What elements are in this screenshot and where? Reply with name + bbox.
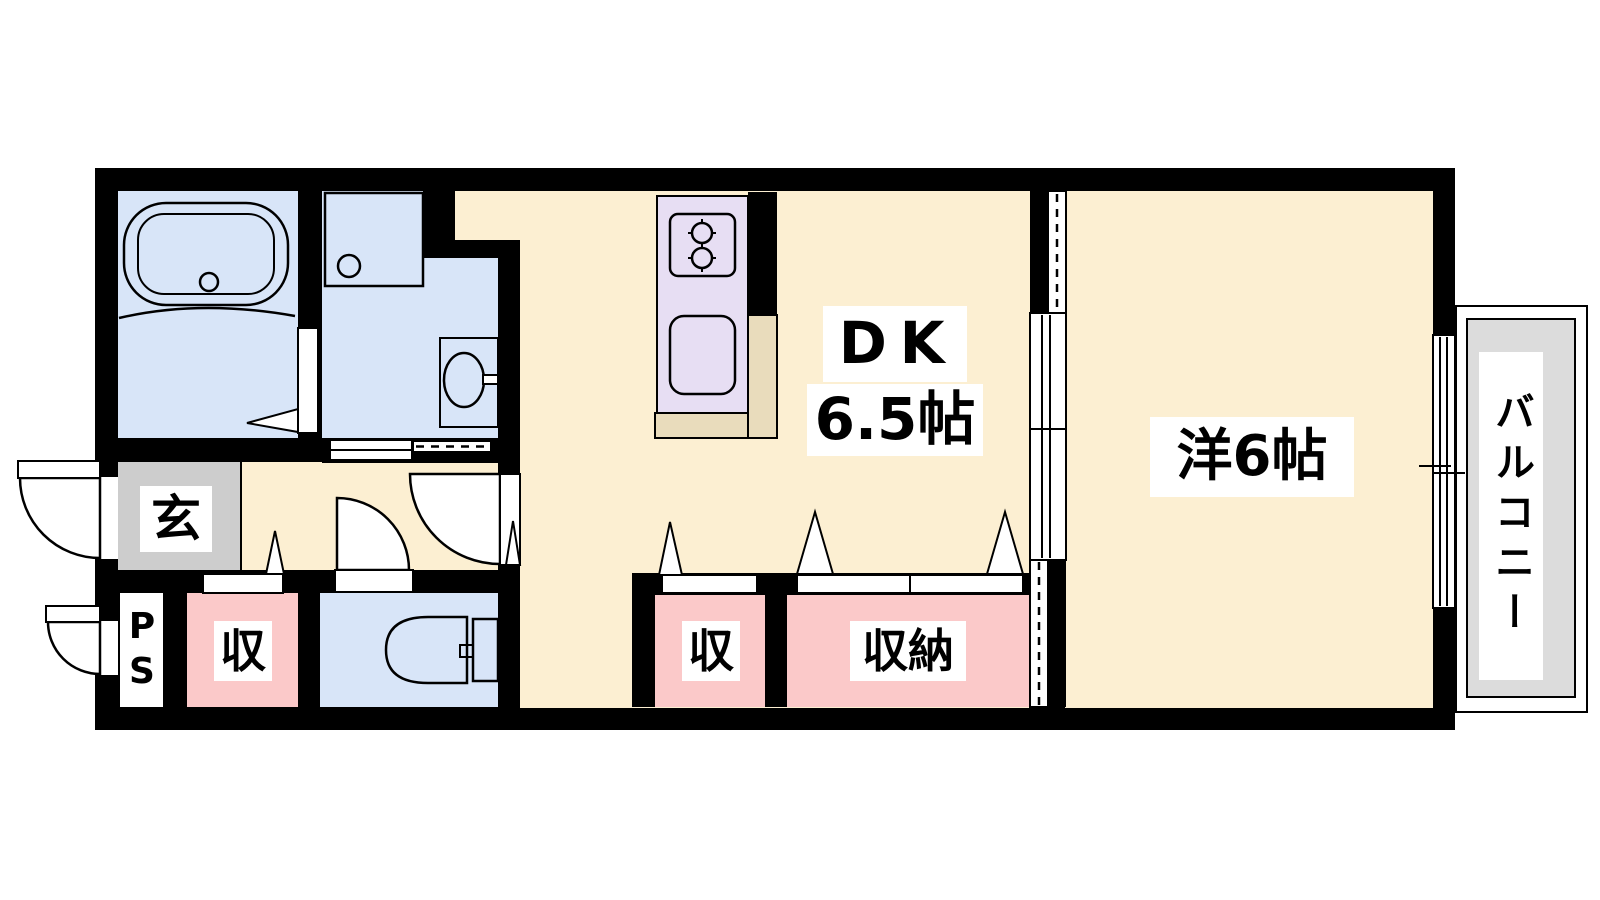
wall-storage2-north (655, 573, 765, 595)
room-bathroom (118, 191, 298, 438)
wall-washroom-south (322, 438, 520, 463)
storage-3-label: 収納 (850, 621, 966, 681)
hallway (242, 462, 520, 570)
dk-floor-notch (455, 191, 520, 240)
dk-label-name: DK (823, 306, 968, 382)
balcony-label: バルコニー (1479, 352, 1543, 680)
wall-step-vertical (423, 191, 455, 258)
wall-washroom-east-upper (498, 258, 520, 474)
dk-label-size: 6.5帖 (807, 384, 984, 456)
western-room-label: 洋6帖 (1150, 417, 1354, 497)
pipe-space-label: PS (121, 596, 163, 702)
wall-storage2-west (632, 573, 655, 707)
dining-kitchen-label: DK 6.5帖 (780, 296, 1010, 466)
floorplan-canvas: 玄 PS 収 収 収納 DK 6.5帖 洋6帖 バルコニー (0, 0, 1600, 900)
wall-storage3-north (787, 573, 1030, 595)
genkan-label: 玄 (140, 486, 212, 552)
wall-hall-south (118, 570, 520, 593)
wall-step-horizontal (455, 240, 520, 258)
wall-between-closets (765, 573, 787, 707)
storage-1-label: 収 (214, 621, 272, 681)
room-toilet (320, 593, 498, 707)
storage-2-label: 収 (682, 621, 740, 681)
